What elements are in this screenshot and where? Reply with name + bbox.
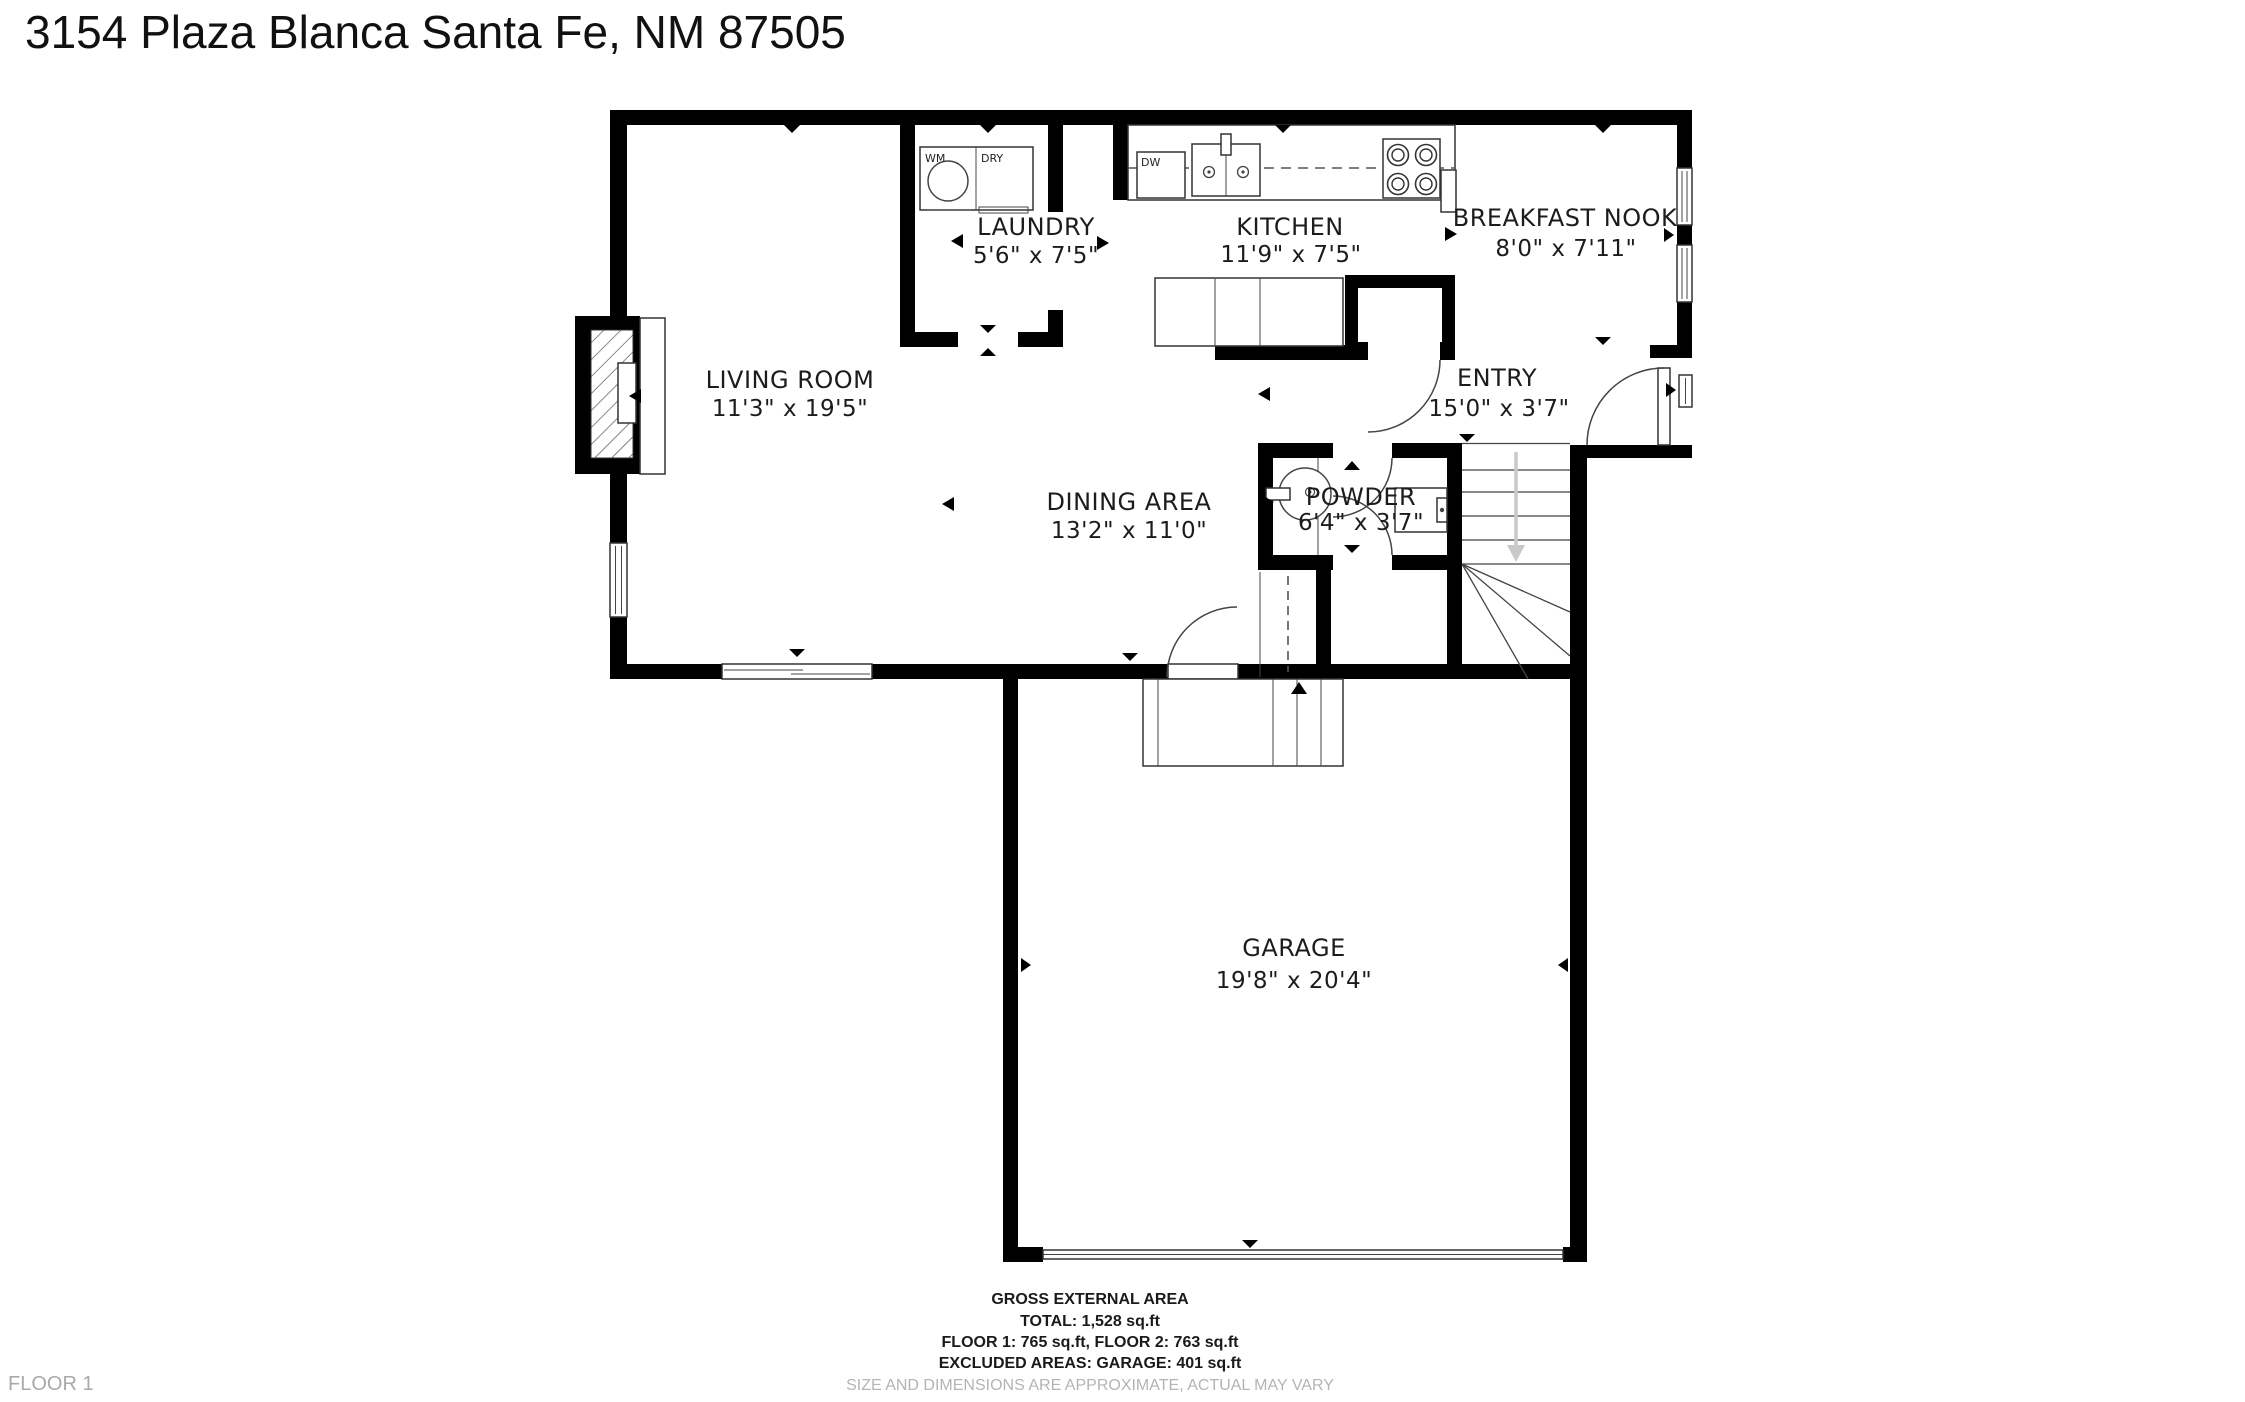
living-room-window	[610, 543, 627, 617]
area-summary-floors: FLOOR 1: 765 sq.ft, FLOOR 2: 763 sq.ft	[942, 1334, 1240, 1351]
area-summary-total: TOTAL: 1,528 sq.ft	[1020, 1313, 1161, 1330]
garage-door	[1043, 1250, 1563, 1259]
breakfast-nook-label: BREAKFAST NOOK	[1453, 204, 1678, 232]
kitchen-sink	[1192, 134, 1260, 196]
floor-plan-page: WM DRY DW	[0, 0, 2245, 1402]
living-room-dims: 11'3" x 19'5"	[712, 396, 868, 422]
laundry-appliances: WM DRY	[920, 147, 1033, 213]
powder-dims: 6'4" x 3'7"	[1298, 510, 1424, 536]
front-door	[1587, 368, 1670, 445]
dining-area-dims: 13'2" x 11'0"	[1051, 518, 1207, 544]
nook-window-upper	[1677, 168, 1692, 225]
entry-sidelight-window	[1679, 375, 1692, 407]
dishwasher-label: DW	[1141, 156, 1160, 169]
garage-label: GARAGE	[1242, 934, 1345, 962]
area-summary-disclaimer: SIZE AND DIMENSIONS ARE APPROXIMATE, ACT…	[846, 1377, 1334, 1394]
sliding-patio-door	[722, 664, 872, 679]
kitchen-label: KITCHEN	[1236, 213, 1344, 241]
stove	[1383, 139, 1440, 198]
nook-window-lower	[1677, 245, 1692, 302]
floor-label: FLOOR 1	[8, 1373, 94, 1395]
living-room-label: LIVING ROOM	[706, 366, 875, 394]
floor-plan: WM DRY DW	[0, 0, 2245, 1402]
dishwasher: DW	[1137, 152, 1185, 198]
garage-step-landing	[1143, 679, 1343, 766]
area-summary-heading: GROSS EXTERNAL AREA	[991, 1291, 1189, 1308]
area-summary: GROSS EXTERNAL AREA TOTAL: 1,528 sq.ft F…	[846, 1291, 1334, 1394]
washer-label: WM	[925, 152, 945, 165]
hearth	[640, 318, 665, 474]
garage-dims: 19'8" x 20'4"	[1216, 968, 1372, 994]
entry-dims: 15'0" x 3'7"	[1428, 396, 1569, 422]
dryer-label: DRY	[981, 152, 1003, 165]
laundry-label: LAUNDRY	[977, 213, 1095, 241]
kitchen-dims: 11'9" x 7'5"	[1220, 242, 1361, 268]
dining-to-garage-door	[1167, 607, 1238, 679]
dining-area-label: DINING AREA	[1047, 488, 1212, 516]
kitchen-peninsula	[1155, 278, 1343, 346]
powder-label: POWDER	[1306, 483, 1416, 511]
breakfast-nook-dims: 8'0" x 7'11"	[1495, 236, 1636, 262]
entry-label: ENTRY	[1457, 364, 1537, 392]
stair-down-arrow-icon	[1507, 545, 1525, 562]
area-summary-excluded: EXCLUDED AREAS: GARAGE: 401 sq.ft	[939, 1355, 1242, 1372]
fireplace	[575, 316, 665, 474]
laundry-dims: 5'6" x 7'5"	[973, 243, 1099, 269]
page-title: 3154 Plaza Blanca Santa Fe, NM 87505	[25, 6, 846, 58]
